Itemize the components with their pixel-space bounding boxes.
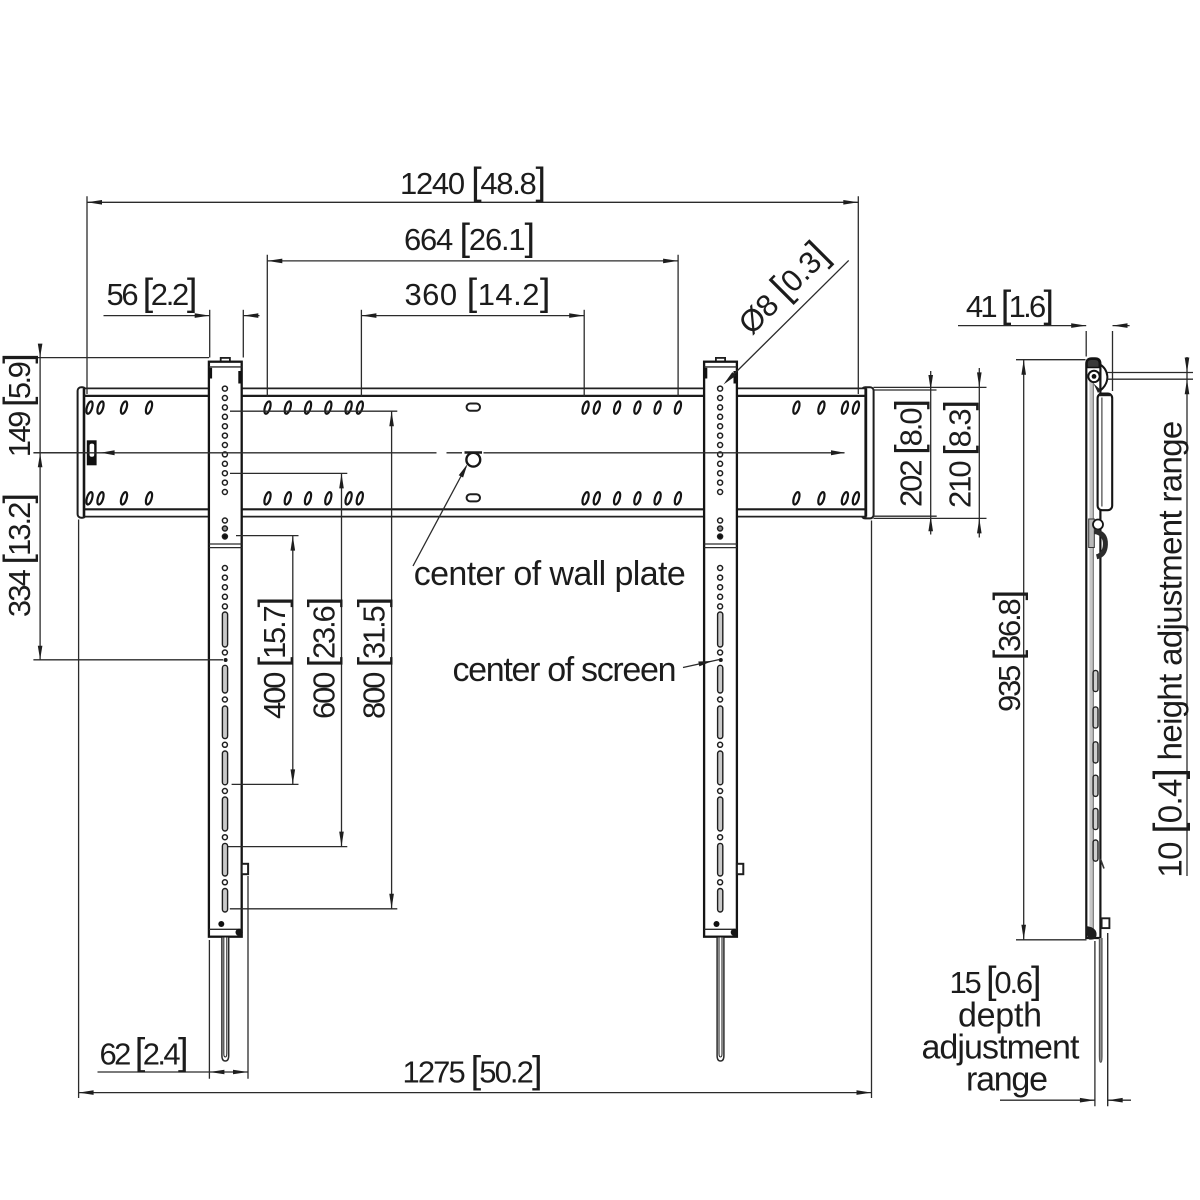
svg-text:210 [8.3]: 210 [8.3] (938, 402, 980, 508)
svg-text:400 [15.7]: 400 [15.7] (252, 599, 294, 719)
svg-text:62 [2.4]: 62 [2.4] (99, 1031, 185, 1073)
svg-text:41 [1.6]: 41 [1.6] (966, 284, 1052, 326)
svg-text:360 [14.2]: 360 [14.2] (404, 272, 551, 314)
svg-text:334 [13.2]: 334 [13.2] (0, 495, 39, 617)
svg-text:149 [5.9]: 149 [5.9] (0, 356, 39, 458)
svg-text:center of wall plate: center of wall plate (414, 555, 686, 593)
svg-text:935 [36.8]: 935 [36.8] (987, 592, 1029, 712)
svg-text:1240 [48.8]: 1240 [48.8] (400, 161, 545, 203)
svg-text:202 [8.0]: 202 [8.0] (889, 401, 931, 507)
svg-text:800 [31.5]: 800 [31.5] (352, 599, 394, 719)
svg-text:center of screen: center of screen (453, 651, 676, 689)
svg-text:600 [23.6]: 600 [23.6] (302, 599, 344, 719)
svg-text:range: range (966, 1061, 1047, 1099)
svg-text:56 [2.2]: 56 [2.2] (106, 272, 195, 314)
svg-text:1275 [50.2]: 1275 [50.2] (403, 1049, 541, 1091)
svg-text:10 [0.4] height adjustment ran: 10 [0.4] height adjustment range (1147, 421, 1191, 877)
svg-text:664 [26.1]: 664 [26.1] (404, 217, 534, 259)
